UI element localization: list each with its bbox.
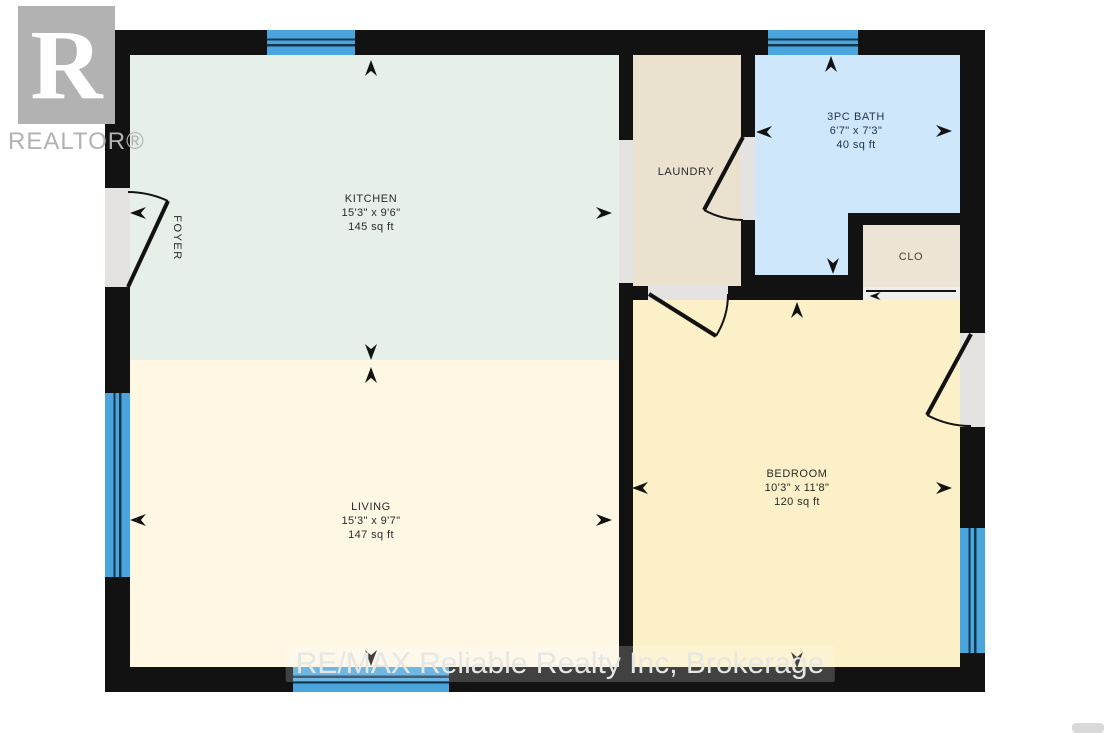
bedroom-window-right [960, 528, 985, 653]
kitchen-name: KITCHEN [341, 192, 400, 206]
closet-name: CLO [899, 250, 923, 264]
opening-bedroom-door [648, 286, 728, 300]
bath-label: 3PC BATH 6'7" x 7'3" 40 sq ft [827, 110, 885, 152]
bath-area: 40 sq ft [827, 138, 885, 152]
bedroom-area: 120 sq ft [765, 495, 830, 509]
bath-name: 3PC BATH [827, 110, 885, 124]
closet-label: CLO [899, 250, 923, 264]
realtor-logo-icon: R [18, 6, 115, 124]
living-dimensions: 15'3" x 9'7" [341, 514, 400, 528]
opening-bedroom-side-door [960, 333, 985, 427]
kitchen-dimensions: 15'3" x 9'6" [341, 206, 400, 220]
realtor-logo-text: REALTOR® [8, 128, 128, 156]
interior-wall-closet-top [848, 213, 960, 225]
living-label: LIVING 15'3" x 9'7" 147 sq ft [341, 500, 400, 542]
opening-kitchen-laundry [619, 140, 633, 283]
laundry-name: LAUNDRY [658, 165, 715, 179]
kitchen-area: 145 sq ft [341, 220, 400, 234]
realtor-logo-letter: R [30, 15, 102, 115]
bedroom-label: BEDROOM 10'3" x 11'8" 120 sq ft [765, 467, 830, 509]
living-area: 147 sq ft [341, 528, 400, 542]
brokerage-watermark: RE/MAX Reliable Realty Inc, Brokerage [286, 646, 835, 682]
living-name: LIVING [341, 500, 400, 514]
living-window-left [105, 393, 130, 577]
opening-bath-door [741, 137, 755, 220]
bath-dimensions: 6'7" x 7'3" [827, 124, 885, 138]
foyer-label: FOYER [171, 215, 183, 260]
interior-wall-closet-left [848, 225, 863, 289]
realtor-logo: R REALTOR® [8, 6, 128, 156]
bedroom-dimensions: 10'3" x 11'8" [765, 481, 830, 495]
bedroom-name: BEDROOM [765, 467, 830, 481]
kitchen-window-top [267, 30, 355, 55]
interior-wall-bath-bottom [741, 275, 863, 287]
opening-entry-door [105, 188, 130, 287]
floor-plan: KITCHEN 15'3" x 9'6" 145 sq ft LIVING 15… [0, 0, 1112, 731]
corner-ui-pill [1072, 723, 1104, 733]
bath-window-top [768, 30, 858, 55]
kitchen-label: KITCHEN 15'3" x 9'6" 145 sq ft [341, 192, 400, 234]
laundry-label: LAUNDRY [658, 165, 715, 179]
